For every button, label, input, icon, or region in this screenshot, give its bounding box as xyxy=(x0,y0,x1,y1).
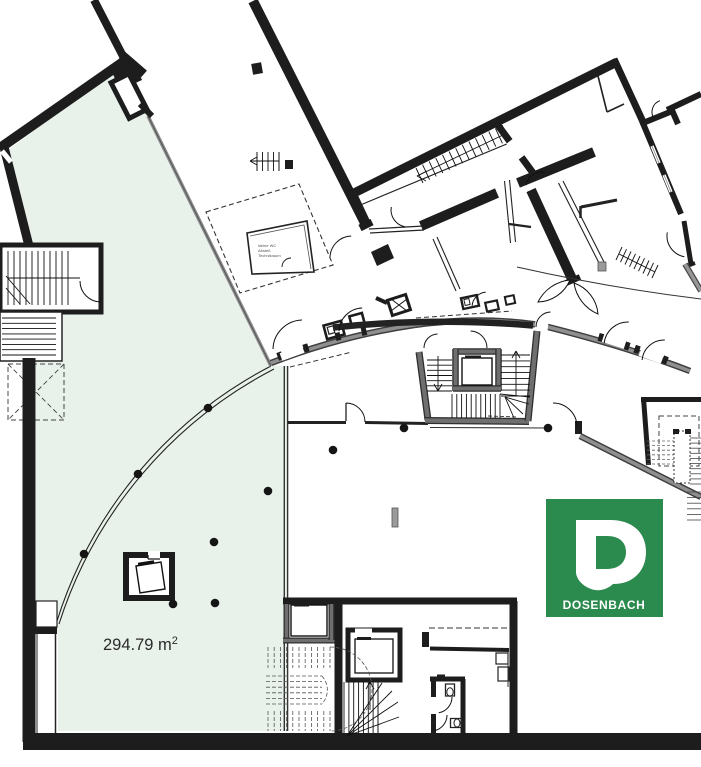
svg-text:Technikraum: Technikraum xyxy=(258,253,281,258)
svg-text:DOSENBACH: DOSENBACH xyxy=(563,598,646,612)
svg-text:294.79 m2: 294.79 m2 xyxy=(103,635,178,654)
